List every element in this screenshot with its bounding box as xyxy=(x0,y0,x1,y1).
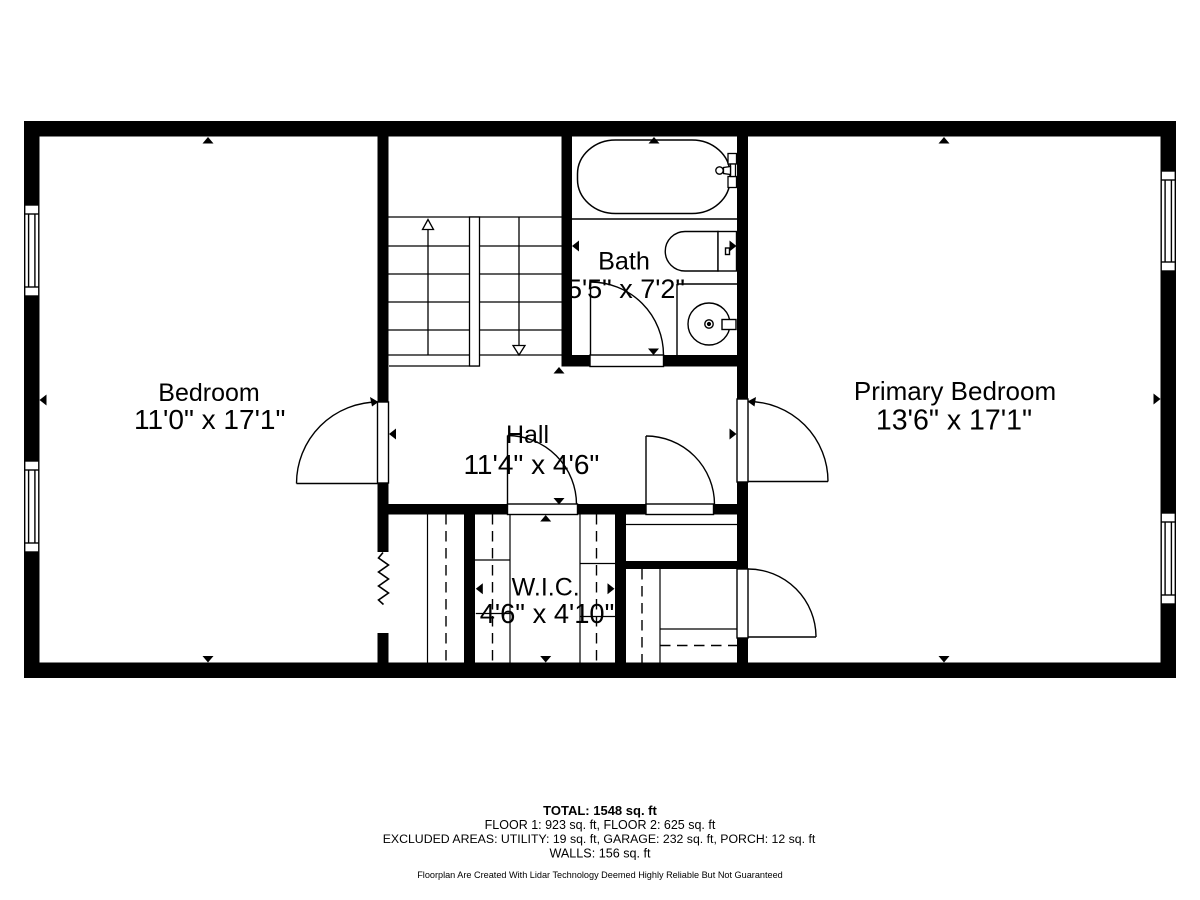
svg-text:4'6" x 4'10": 4'6" x 4'10" xyxy=(480,598,615,629)
svg-text:Hall: Hall xyxy=(506,421,549,449)
svg-text:Bath: Bath xyxy=(598,248,650,276)
svg-text:13'6" x 17'1": 13'6" x 17'1" xyxy=(876,405,1032,437)
svg-text:Floorplan Are Created With Lid: Floorplan Are Created With Lidar Technol… xyxy=(417,870,783,880)
svg-text:5'5" x 7'2": 5'5" x 7'2" xyxy=(567,274,685,304)
svg-text:Bedroom: Bedroom xyxy=(158,379,259,407)
svg-text:FLOOR 1: 923 sq. ft, FLOOR 2:: FLOOR 1: 923 sq. ft, FLOOR 2: 625 sq. ft xyxy=(485,818,716,832)
svg-text:11'4" x 4'6": 11'4" x 4'6" xyxy=(463,449,599,480)
svg-text:Primary Bedroom: Primary Bedroom xyxy=(854,376,1056,406)
svg-text:11'0" x 17'1": 11'0" x 17'1" xyxy=(134,404,285,435)
svg-text:WALLS: 156 sq. ft: WALLS: 156 sq. ft xyxy=(549,846,651,860)
svg-text:EXCLUDED AREAS: UTILITY: 19 sq: EXCLUDED AREAS: UTILITY: 19 sq. ft, GARA… xyxy=(383,832,816,846)
svg-text:TOTAL: 1548 sq. ft: TOTAL: 1548 sq. ft xyxy=(543,803,657,818)
